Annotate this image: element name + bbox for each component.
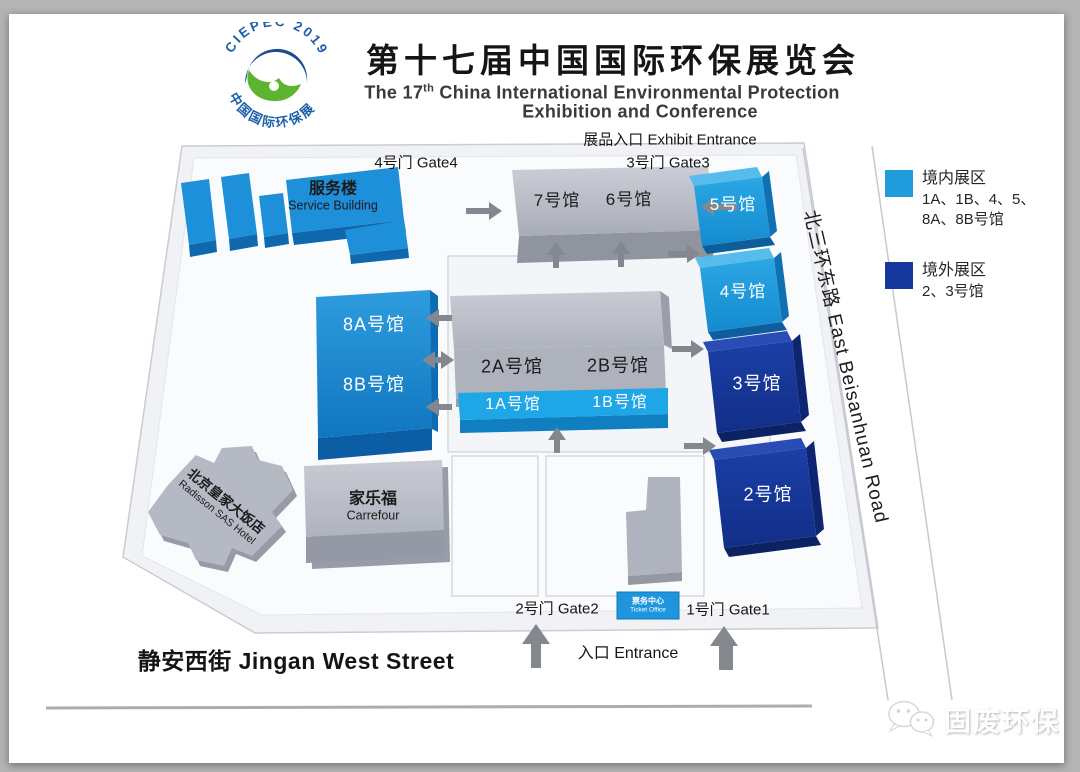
hall-3-label: 3号馆 — [732, 374, 781, 395]
page-title: 第十七届中国国际环保展览会 — [366, 42, 860, 80]
legend-domestic-label: 境内展区 — [922, 168, 1065, 190]
hall-1a-label: 1A号馆 — [485, 396, 541, 414]
service-building-label-cn: 服务楼 — [288, 181, 378, 199]
legend-domestic-halls-line1: 1A、1B、4、5、 — [922, 190, 1065, 210]
subtitle-prefix: The 17 — [364, 83, 423, 103]
logo-swirl-icon — [245, 49, 307, 101]
service-building-label: 服务楼 Service Building — [288, 181, 378, 214]
legend-overseas-label: 境外展区 — [922, 260, 1065, 282]
service-building-label-en: Service Building — [288, 199, 378, 213]
hall-1b-label: 1B号馆 — [592, 394, 648, 412]
carrefour-label: 家乐福 Carrefour — [347, 491, 400, 524]
legend-overseas-row: 境外展区 2、3号馆 — [885, 260, 1065, 302]
gate1-label: 1号门 Gate1 — [686, 601, 769, 618]
page-subtitle-line2: Exhibition and Conference — [522, 102, 758, 123]
hall-7-label: 7号馆 — [534, 191, 580, 211]
subtitle-rest: China International Environmental Protec… — [434, 83, 840, 103]
subtitle-sup: th — [423, 83, 434, 95]
entrance-arrow-up-icon — [710, 626, 738, 670]
watermark: 固废环保 — [884, 698, 1060, 740]
svg-text:CIEPEC 2019: CIEPEC 2019 — [222, 22, 332, 58]
legend-domestic-swatch — [885, 170, 913, 197]
gate3-label: 3号门 Gate3 — [626, 154, 709, 171]
hall-4-label: 4号馆 — [720, 282, 766, 302]
hall-7-6-building-shape — [512, 166, 715, 263]
legend-domestic-halls-line2: 8A、8B号馆 — [922, 210, 1065, 230]
hall-8a-label: 8A号馆 — [343, 315, 405, 336]
jingan-west-street-label: 静安西街 Jingan West Street — [138, 648, 455, 674]
legend-overseas-swatch — [885, 262, 913, 289]
legend-domestic-row: 境内展区 1A、1B、4、5、 8A、8B号馆 — [885, 168, 1065, 230]
ticket-office-label: 票务中心 Ticket Office — [630, 596, 666, 613]
logo-arc-top-text: CIEPEC 2019 — [222, 22, 332, 58]
ciepec-logo: CIEPEC 2019 中国国际环保展 — [195, 22, 367, 142]
hall-5-label: 5号馆 — [710, 195, 756, 215]
legend-overseas-halls-line1: 2、3号馆 — [922, 282, 1065, 302]
wechat-icon — [884, 698, 938, 740]
hall-8b-label: 8B号馆 — [343, 375, 405, 396]
carrefour-label-en: Carrefour — [347, 509, 400, 523]
hall-2a-label: 2A号馆 — [481, 357, 543, 378]
hall-6-label: 6号馆 — [606, 190, 652, 210]
entrance-label: 入口 Entrance — [578, 645, 679, 663]
gate2-label: 2号门 Gate2 — [515, 600, 598, 617]
exhibition-map-page: CIEPEC 2019 中国国际环保展 第十七届中国国际环保展览会 The 17… — [0, 0, 1080, 772]
south-curb-line — [46, 706, 812, 708]
hall-2-label: 2号馆 — [743, 485, 792, 506]
page-subtitle-line1: The 17th China International Environment… — [364, 83, 839, 104]
gate4-label: 4号门 Gate4 — [374, 154, 457, 171]
legend: 境内展区 1A、1B、4、5、 8A、8B号馆 境外展区 2、3号馆 — [885, 168, 1065, 332]
carrefour-label-cn: 家乐福 — [347, 491, 400, 509]
ticket-office-label-cn: 票务中心 — [630, 596, 666, 606]
ticket-office-label-en: Ticket Office — [630, 606, 666, 614]
watermark-text: 固废环保 — [944, 700, 1060, 739]
hall-2b-label: 2B号馆 — [587, 356, 649, 377]
exhibit-entrance-label: 展品入口 Exhibit Entrance — [583, 131, 756, 148]
